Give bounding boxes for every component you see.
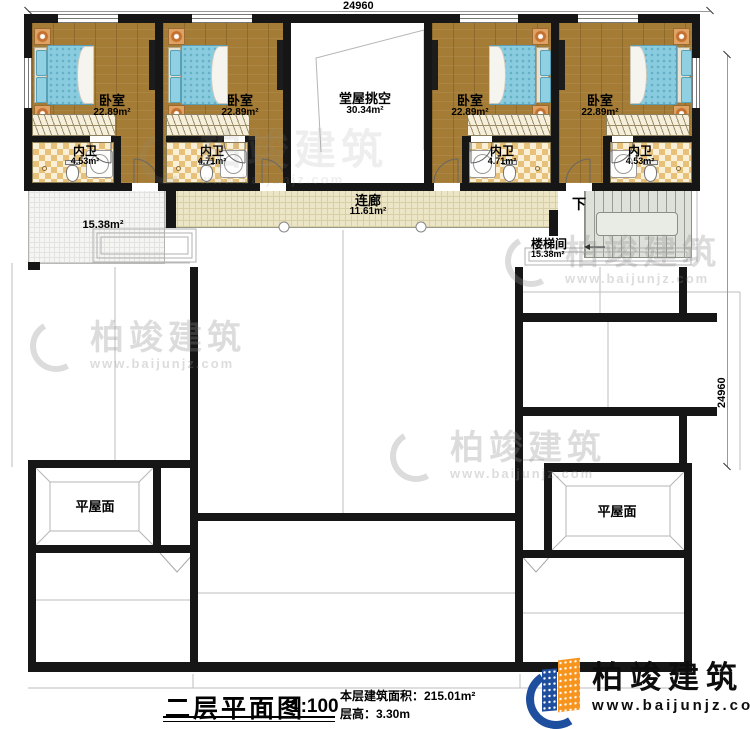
nightstand (532, 28, 549, 45)
bed-blanket (77, 46, 94, 104)
wall-stub (28, 262, 40, 270)
pillow (170, 77, 181, 103)
terrace-area: 15.38m² (83, 220, 124, 231)
door-opening (90, 136, 111, 142)
pillow (540, 77, 551, 103)
wall-flatroof-left (28, 460, 198, 468)
door-opening (224, 136, 245, 142)
bedroom-area: 22.89m² (451, 108, 488, 118)
brand-logo-icon (528, 655, 586, 721)
bath-area: 4.53m² (71, 157, 100, 166)
wall-stub (549, 210, 558, 236)
floor-area-text: 本层建筑面积：215.01m² (340, 687, 475, 704)
toilet (66, 165, 79, 182)
hall-area: 30.34m² (346, 106, 383, 116)
hall-label: 堂屋挑空 (339, 92, 391, 105)
bed-headboard (536, 47, 549, 103)
wall-bath (603, 136, 610, 183)
floor-plan-canvas: 卧室 22.89m² 卧室 22.89m² 卧室 22.89m² 卧室 22.8… (0, 0, 750, 729)
watermark-url: www.baijunjz.com (90, 356, 246, 371)
roof-edge-lines (12, 190, 740, 688)
wall-bath (248, 136, 255, 183)
corridor-area: 11.61m² (350, 207, 387, 217)
window (692, 58, 700, 108)
bed-headboard (34, 47, 47, 103)
wall-bath (114, 136, 121, 183)
window (24, 58, 32, 108)
wall-flatroof-left (153, 460, 161, 553)
wall-flatroof-right (548, 463, 692, 472)
wall-right-room (679, 267, 687, 313)
flat-roof-label: 平屋面 (75, 500, 114, 513)
stairwell-area: 15.38m² (531, 250, 565, 259)
window (578, 14, 638, 23)
wall-partition (551, 14, 559, 191)
floor-drain (42, 166, 47, 171)
wall-niche (432, 40, 438, 90)
toilet (644, 165, 657, 182)
bedroom-label: 卧室 (227, 94, 253, 107)
bedroom-label: 卧室 (587, 94, 613, 107)
watermark-name: 柏竣建筑 (450, 431, 606, 467)
sink-basin (224, 154, 243, 174)
watermark-logo-icon (384, 424, 448, 488)
stair-landing (596, 212, 678, 236)
door-opening (471, 136, 492, 142)
brand-name: 柏竣建筑 (592, 662, 750, 693)
wall-partition (283, 14, 291, 191)
bed-headboard (168, 47, 181, 103)
window (58, 14, 118, 23)
floor-drain (535, 166, 540, 171)
wall-right-room (515, 407, 717, 416)
wall-niche (559, 40, 565, 90)
bath-area: 4.71m² (488, 157, 517, 166)
wall-center-room-top (190, 513, 523, 521)
bed-blanket (489, 46, 506, 104)
dimension-value-top: 24960 (343, 0, 374, 12)
watermark-name: 柏竣建筑 (90, 321, 246, 357)
wall-partition (155, 14, 163, 191)
floor-height-text: 层高：3.30m (340, 705, 410, 722)
wall-right-room (679, 416, 687, 463)
drawing-title: 二层平面图 (165, 689, 305, 725)
toilet (503, 165, 516, 182)
door-opening (566, 183, 592, 191)
toilet (200, 165, 213, 182)
flat-roof-label: 平屋面 (597, 505, 636, 518)
door-opening (260, 183, 286, 191)
bath-area: 4.53m² (626, 157, 655, 166)
nightstand (168, 28, 185, 45)
stair-down-label: 下 (572, 197, 586, 211)
bed-headboard (677, 47, 690, 103)
bath-area: 4.71m² (198, 157, 227, 166)
wall-right-lower (684, 463, 692, 672)
bedroom-area: 22.89m² (93, 108, 130, 118)
floor-drain (676, 166, 681, 171)
window (192, 14, 252, 23)
brand-logo: 柏竣建筑 www.baijunjz.com (528, 655, 750, 721)
roof-valley-arrows (160, 553, 553, 572)
dimension-value-right: 24960 (716, 377, 728, 408)
pillow (681, 77, 692, 103)
bedroom-area: 22.89m² (581, 108, 618, 118)
wall-courtyard-right (515, 267, 523, 672)
brand-url: www.baijunjz.com (592, 697, 750, 714)
wall-left-lower (28, 460, 36, 672)
pillow (170, 50, 181, 76)
pillow (540, 50, 551, 76)
wall-stub (166, 190, 176, 228)
watermark-url: www.baijunjz.com (565, 271, 721, 286)
hip-roof-lines (36, 468, 684, 550)
door-opening (612, 136, 633, 142)
wall-right-room (515, 313, 717, 322)
watermark-logo-icon (24, 314, 88, 378)
bedroom-area: 22.89m² (221, 108, 258, 118)
watermark: 柏竣建筑 www.baijunjz.com (390, 430, 606, 482)
bed-blanket (211, 46, 228, 104)
window (460, 14, 518, 23)
wall-flatroof-right (544, 463, 552, 558)
floor-drain (176, 166, 181, 171)
wall-flatroof-right (515, 550, 692, 558)
bedroom-label: 卧室 (99, 94, 125, 107)
logo-building-blue-icon (542, 668, 557, 711)
bedroom-label: 卧室 (457, 94, 483, 107)
nightstand (34, 28, 51, 45)
drawing-scale: 1:100 (290, 696, 339, 718)
wall-bath (462, 136, 469, 183)
logo-building-orange-icon (558, 658, 580, 713)
nightstand (673, 28, 690, 45)
door-opening (132, 183, 158, 191)
wall-courtyard-left (190, 267, 198, 672)
pillow (36, 77, 47, 103)
watermark: 柏竣建筑 www.baijunjz.com (30, 320, 246, 372)
wall-partition (424, 14, 432, 191)
pillow (36, 50, 47, 76)
pillow (681, 50, 692, 76)
title-underline (163, 721, 335, 722)
bed-blanket (630, 46, 647, 104)
door-opening (434, 183, 460, 191)
wall-flatroof-left (28, 545, 198, 553)
